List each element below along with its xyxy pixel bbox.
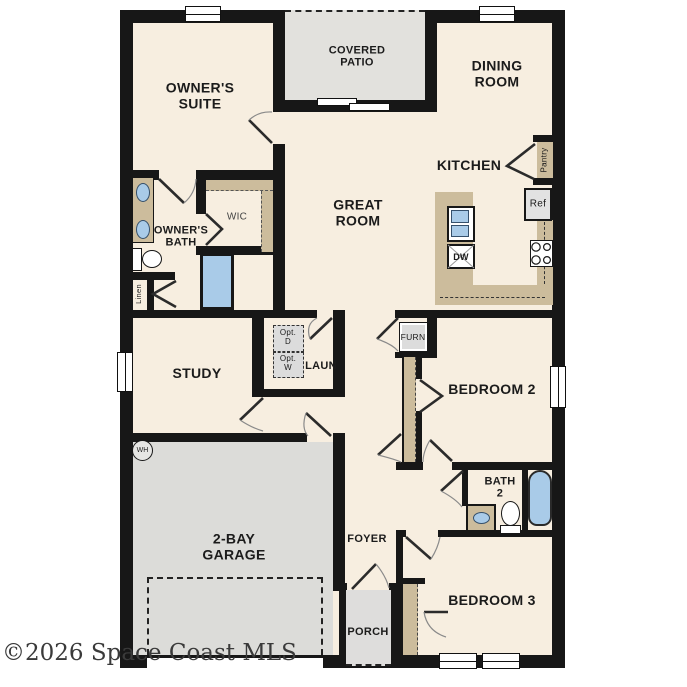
toilet	[132, 248, 142, 271]
wall-segment	[252, 310, 264, 397]
window	[482, 653, 520, 669]
bathtub	[528, 470, 552, 526]
wall-segment	[395, 310, 553, 318]
room-label-wic: WIC	[227, 211, 247, 222]
water-heater-label: WH	[137, 447, 149, 454]
kitchen-counter	[435, 285, 553, 305]
sink-basin	[451, 225, 469, 237]
room-label-study: STUDY	[173, 366, 222, 382]
fixture-label-ref: Ref	[530, 198, 546, 209]
fixture-label-pantry: Pantry	[541, 148, 550, 173]
wall-segment	[147, 280, 154, 311]
room-label-owners-bath: OWNER'S BATH	[154, 225, 208, 250]
room-label-bath2: BATH 2	[485, 476, 516, 501]
window	[479, 6, 515, 22]
wall-segment	[533, 178, 553, 185]
room-label-kitchen: KITCHEN	[437, 158, 501, 174]
room-label-foyer: FOYER	[347, 533, 386, 545]
fixture-label-opt-d: Opt. D	[280, 329, 296, 347]
wall-segment	[133, 433, 307, 442]
room-label-laundry: LAUN	[305, 360, 337, 372]
fixture-label-opt-w: Opt. W	[280, 355, 296, 373]
wall-segment	[273, 144, 285, 318]
room-label-great-room: GREAT ROOM	[333, 197, 382, 228]
room-label-bedroom3: BEDROOM 3	[448, 593, 536, 609]
room-label-garage: 2-BAY GARAGE	[202, 531, 265, 562]
window	[550, 366, 566, 408]
wall-segment	[333, 583, 347, 591]
counter-dash	[440, 297, 545, 298]
wall-segment	[120, 310, 317, 318]
wall-segment	[252, 389, 345, 397]
window	[185, 6, 221, 22]
room-label-dining-room: DINING ROOM	[472, 58, 523, 89]
watermark: ©2026 Space Coast MLS	[2, 640, 297, 666]
bedroom2-closet	[402, 357, 416, 462]
toilet-bowl	[142, 250, 162, 268]
room-label-bedroom2: BEDROOM 2	[448, 382, 536, 398]
wall-segment	[120, 10, 133, 668]
room-label-covered-patio: COVERED PATIO	[329, 45, 386, 70]
wall-segment	[533, 135, 553, 142]
wall-segment	[452, 462, 553, 470]
wall-segment	[196, 170, 273, 180]
wall-segment	[133, 272, 175, 280]
toilet-bowl	[501, 501, 520, 526]
range	[530, 240, 553, 267]
floor-plan: WH	[0, 0, 687, 687]
sliding-door	[349, 103, 390, 111]
fixture-label-furn: FURN	[401, 333, 426, 343]
sink-basin	[473, 512, 490, 524]
wall-segment	[273, 10, 285, 112]
wall-segment	[552, 10, 565, 668]
room-label-owners-suite: OWNER'S SUITE	[166, 80, 234, 111]
sink-basin	[136, 183, 150, 202]
wall-segment	[196, 180, 206, 214]
wall-segment	[396, 462, 423, 470]
fixture-label-linen: Linen	[135, 284, 143, 304]
wall-segment	[427, 310, 437, 357]
wall-segment	[333, 433, 345, 585]
window	[117, 352, 133, 392]
water-heater: WH	[132, 440, 153, 461]
wall-segment	[391, 583, 398, 668]
wall-segment	[333, 310, 345, 397]
wic-shelf	[261, 191, 273, 252]
room-label-porch: PORCH	[347, 626, 388, 638]
wall-segment	[416, 357, 422, 379]
wall-segment	[416, 411, 422, 462]
sink-basin	[451, 210, 469, 223]
fixture-label-dw: DW	[453, 252, 469, 262]
shower	[200, 253, 234, 310]
bedroom3-closet	[403, 584, 418, 655]
wic-shelf	[206, 180, 273, 191]
wall-segment	[462, 470, 468, 506]
wall-segment	[425, 10, 437, 112]
toilet	[500, 525, 521, 534]
window	[439, 653, 477, 669]
sink-basin	[136, 220, 150, 239]
